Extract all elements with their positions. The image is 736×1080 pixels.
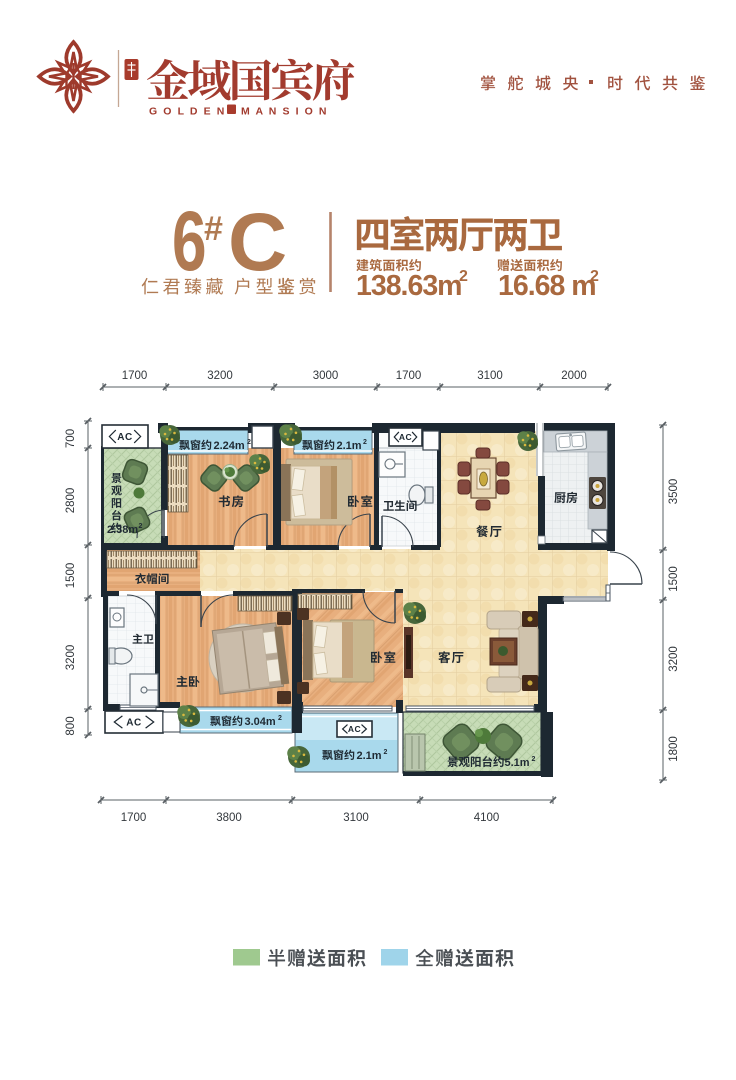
svg-text:700: 700 [65,429,77,448]
svg-text:4100: 4100 [474,812,500,824]
svg-text:3000: 3000 [313,370,339,382]
svg-text:1500: 1500 [65,563,77,589]
svg-text:#: # [204,210,223,248]
svg-text:AC: AC [117,432,132,443]
svg-text:138.63m: 138.63m [356,270,462,302]
svg-text:2.1m: 2.1m [337,440,362,452]
svg-text:G O L D E N: G O L D E N [149,106,226,118]
svg-text:M A N S I O N: M A N S I O N [241,106,328,118]
svg-text:3100: 3100 [343,812,369,824]
svg-text:AC: AC [126,718,141,729]
svg-text:3800: 3800 [216,812,242,824]
svg-text:3100: 3100 [477,370,503,382]
svg-text:3200: 3200 [207,370,233,382]
svg-text:3500: 3500 [668,479,680,505]
svg-text:2: 2 [363,439,367,446]
svg-text:AC: AC [399,432,412,442]
svg-text:2.38m: 2.38m [107,524,138,536]
svg-text:1700: 1700 [122,370,148,382]
svg-text:C: C [228,197,287,288]
svg-text:5.1m: 5.1m [505,757,530,769]
svg-text:1700: 1700 [121,812,147,824]
svg-text:2000: 2000 [561,370,587,382]
svg-text:2: 2 [384,749,388,756]
svg-text:2.24m: 2.24m [214,440,245,452]
svg-text:800: 800 [65,716,77,735]
svg-text:2: 2 [590,268,599,285]
svg-text:1700: 1700 [396,370,422,382]
svg-text:3200: 3200 [668,646,680,672]
svg-text:2: 2 [247,439,251,446]
svg-text:2800: 2800 [65,488,77,514]
svg-text:2: 2 [278,715,282,722]
svg-text:3.04m: 3.04m [245,716,276,728]
svg-text:AC: AC [348,724,361,734]
svg-text:2: 2 [532,756,536,763]
svg-text:3200: 3200 [65,645,77,671]
svg-text:1500: 1500 [668,566,680,592]
svg-text:2: 2 [459,268,468,285]
svg-text:16.68 m: 16.68 m [498,270,596,302]
svg-text:2.1m: 2.1m [357,750,382,762]
svg-text:2: 2 [139,523,143,530]
svg-text:6: 6 [172,194,207,288]
svg-text:1800: 1800 [668,736,680,762]
